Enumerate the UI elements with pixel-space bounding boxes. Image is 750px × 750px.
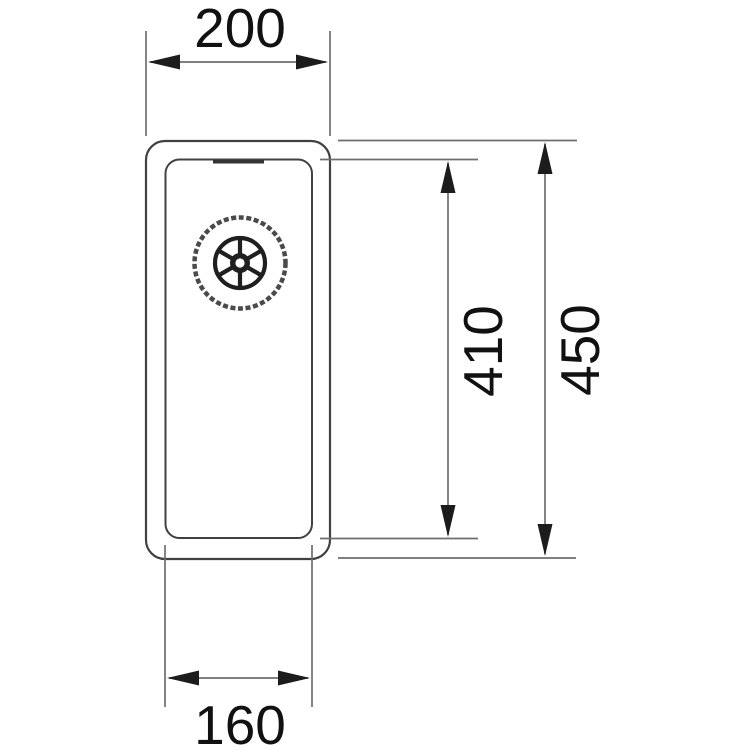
arrow-right-icon xyxy=(296,55,328,70)
dimension-outer-width: 200 xyxy=(146,0,330,136)
sink-outline xyxy=(146,141,330,559)
outer-depth-label: 450 xyxy=(549,304,611,396)
arrow-down-icon xyxy=(538,524,553,556)
arrow-up-icon xyxy=(538,142,553,174)
inner-width-label: 160 xyxy=(194,694,286,750)
drain-strainer xyxy=(195,218,286,309)
dimension-inner-depth: 410 xyxy=(320,160,514,539)
dimension-inner-width: 160 xyxy=(165,545,312,750)
arrow-down-icon xyxy=(441,505,456,537)
drawing-canvas: 200 160 410 450 xyxy=(0,0,750,750)
inner-depth-label: 410 xyxy=(452,305,514,397)
arrow-left-icon xyxy=(148,55,180,70)
sink-outer-rim xyxy=(146,141,330,559)
arrow-up-icon xyxy=(441,161,456,193)
outer-width-label: 200 xyxy=(194,0,286,59)
arrow-left-icon xyxy=(167,671,199,686)
sink-dimension-drawing: 200 160 410 450 xyxy=(0,0,750,750)
drain-center-hole xyxy=(235,258,244,267)
arrow-right-icon xyxy=(278,671,310,686)
